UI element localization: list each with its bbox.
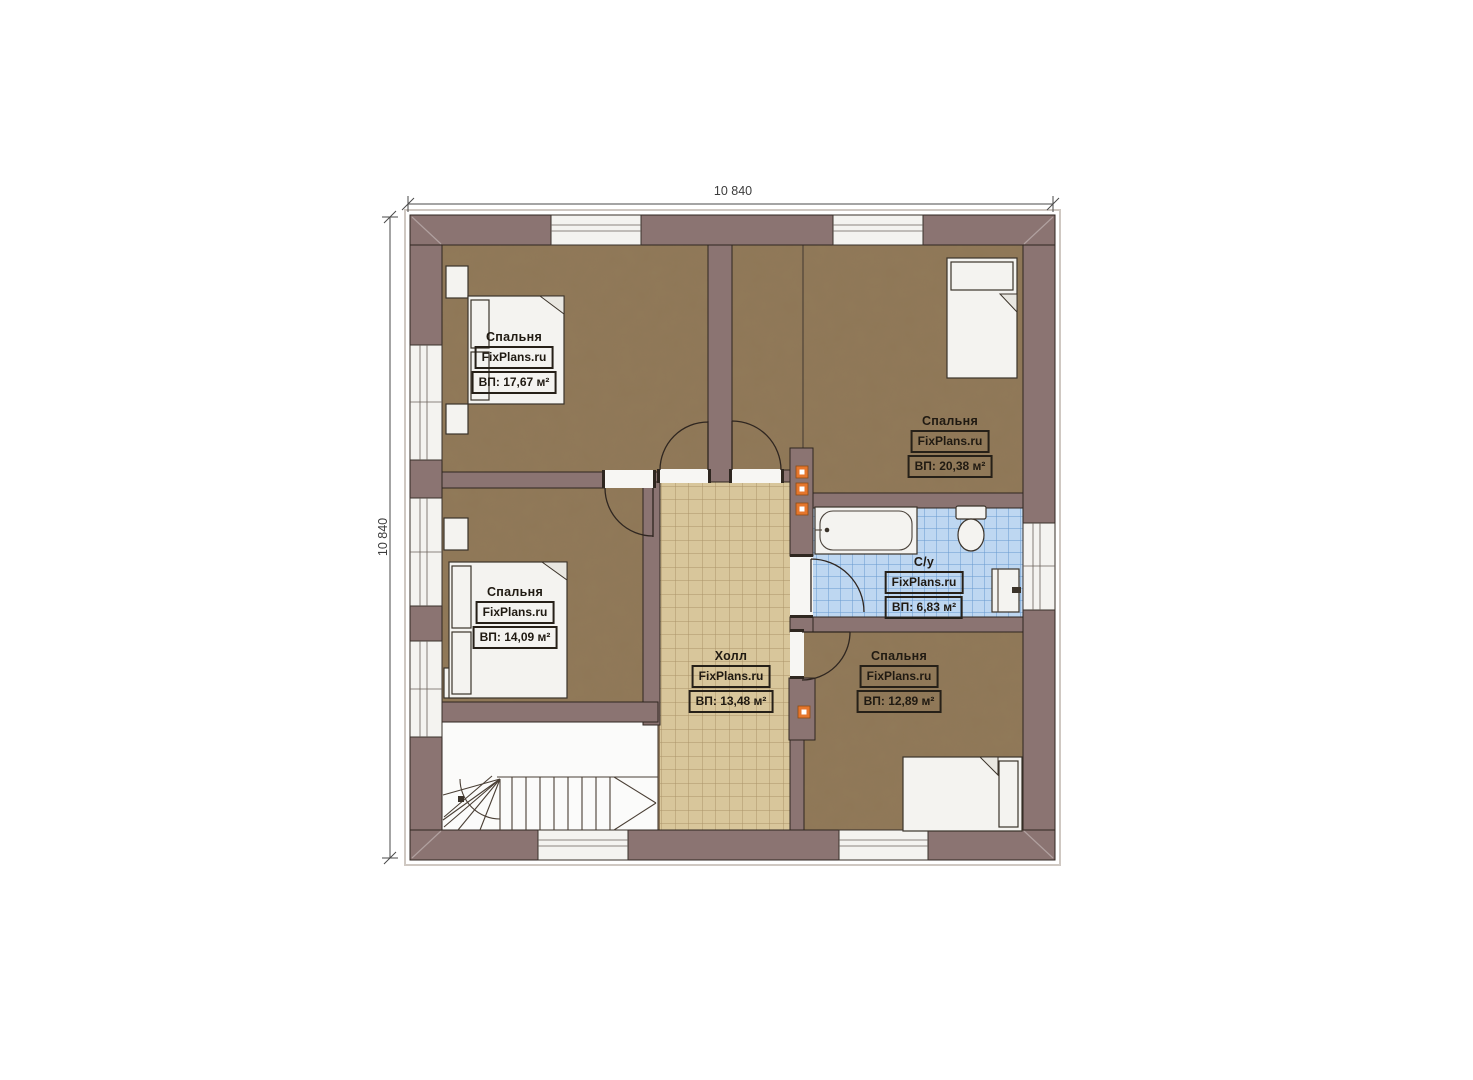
room-brand: FixPlans.ru <box>692 665 771 688</box>
dimension-value-left: 10 840 <box>376 518 390 556</box>
dimension-label-left: 10 840 <box>376 518 390 556</box>
room-area: ВП: 13,48 м² <box>689 690 774 713</box>
window-left-2 <box>410 498 442 606</box>
floor-plan-page: 10 840 10 840 Спальня FixPlans.ru ВП: 17… <box>0 0 1473 1080</box>
window-bottom-1 <box>538 830 628 860</box>
floor-plan-drawing <box>0 0 1473 1080</box>
window-left-3 <box>410 641 442 737</box>
room-name: Спальня <box>486 330 542 344</box>
room-name: С/у <box>914 555 934 569</box>
room-label-bedroom-top-right: Спальня FixPlans.ru ВП: 20,38 м² <box>908 414 993 478</box>
window-bottom-2 <box>839 830 928 860</box>
dimension-label-top: 10 840 <box>714 184 752 198</box>
stair-post <box>458 796 464 802</box>
room-label-hall: Холл FixPlans.ru ВП: 13,48 м² <box>689 649 774 713</box>
room-area: ВП: 14,09 м² <box>473 626 558 649</box>
room-name: Холл <box>715 649 748 663</box>
window-top-1 <box>551 215 641 245</box>
room-label-bedroom-bottom-right: Спальня FixPlans.ru ВП: 12,89 м² <box>857 649 942 713</box>
window-left-1 <box>410 345 442 460</box>
room-brand: FixPlans.ru <box>860 665 939 688</box>
room-area: ВП: 6,83 м² <box>885 596 963 619</box>
room-name: Спальня <box>487 585 543 599</box>
window-right-bathroom <box>1023 523 1055 610</box>
bed-bottom-right <box>903 757 1022 831</box>
room-area: ВП: 17,67 м² <box>472 371 557 394</box>
room-label-bedroom-middle-left: Спальня FixPlans.ru ВП: 14,09 м² <box>473 585 558 649</box>
room-area: ВП: 12,89 м² <box>857 690 942 713</box>
room-area: ВП: 20,38 м² <box>908 455 993 478</box>
bathtub <box>815 507 917 554</box>
bed-top-right <box>947 258 1017 378</box>
window-top-2 <box>833 215 923 245</box>
toilet <box>956 506 986 551</box>
room-label-bedroom-top-left: Спальня FixPlans.ru ВП: 17,67 м² <box>472 330 557 394</box>
room-brand: FixPlans.ru <box>911 430 990 453</box>
stairwell-floor <box>442 722 658 830</box>
room-brand: FixPlans.ru <box>475 346 554 369</box>
room-name: Спальня <box>922 414 978 428</box>
room-brand: FixPlans.ru <box>476 601 555 624</box>
room-brand: FixPlans.ru <box>885 571 964 594</box>
room-label-bathroom: С/у FixPlans.ru ВП: 6,83 м² <box>885 555 964 619</box>
room-name: Спальня <box>871 649 927 663</box>
washbasin-cabinet <box>992 569 1021 612</box>
dimension-value-top: 10 840 <box>714 184 752 198</box>
